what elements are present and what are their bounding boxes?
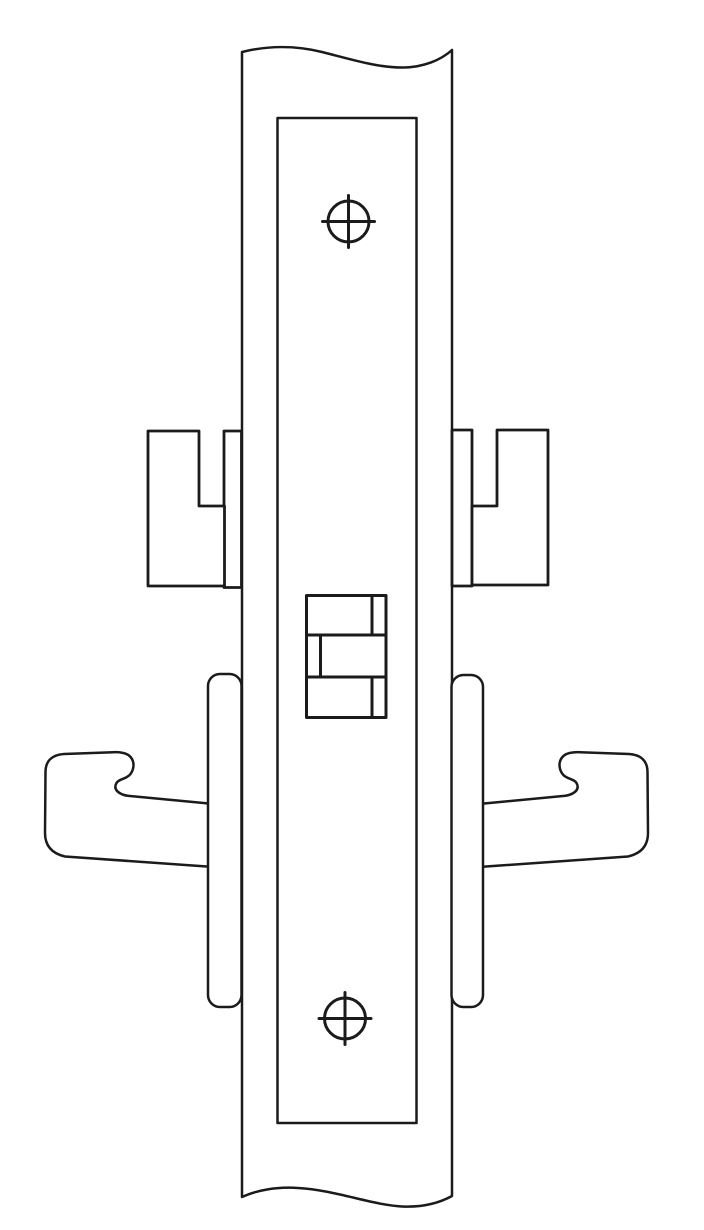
right-lever: [479, 752, 648, 867]
right-hub-strip: [452, 430, 472, 586]
diagram-canvas: Mortise lock with lever trim - technical…: [0, 0, 704, 1230]
left-hub-block: [148, 431, 225, 586]
left-rose: [208, 674, 242, 1007]
right-rose: [452, 675, 484, 1007]
left-lever: [45, 752, 214, 867]
right-hub: [452, 430, 548, 586]
latch-body: [307, 596, 387, 718]
right-hub-block: [472, 430, 548, 585]
mortise-lock-diagram: Mortise lock with lever trim - technical…: [0, 0, 704, 1230]
left-hub-strip: [224, 431, 242, 588]
left-hub: [148, 431, 242, 588]
latch-assembly: [307, 596, 387, 718]
drawing-lines: [45, 47, 648, 1206]
